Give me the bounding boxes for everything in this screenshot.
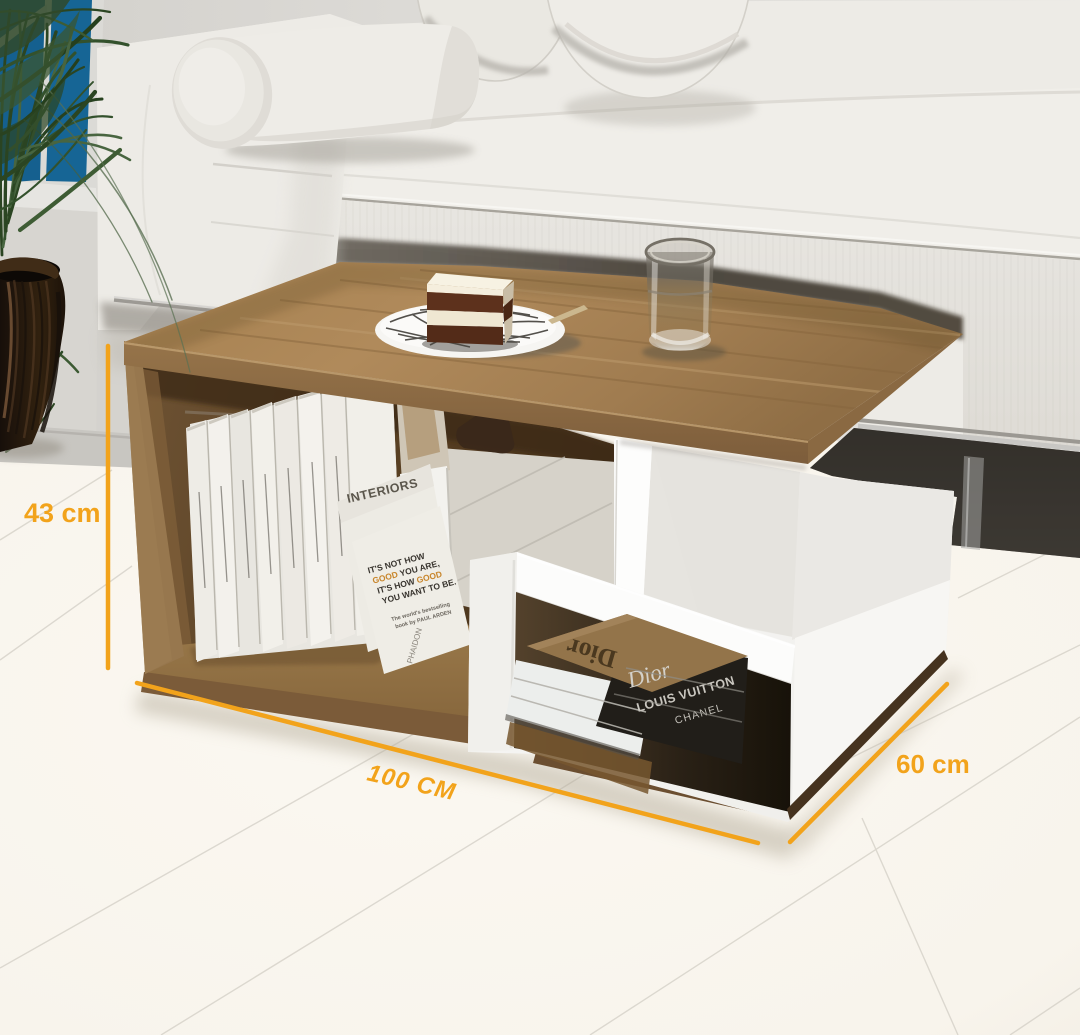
svg-text:60 cm: 60 cm: [896, 749, 970, 779]
svg-text:43 cm: 43 cm: [24, 498, 101, 528]
